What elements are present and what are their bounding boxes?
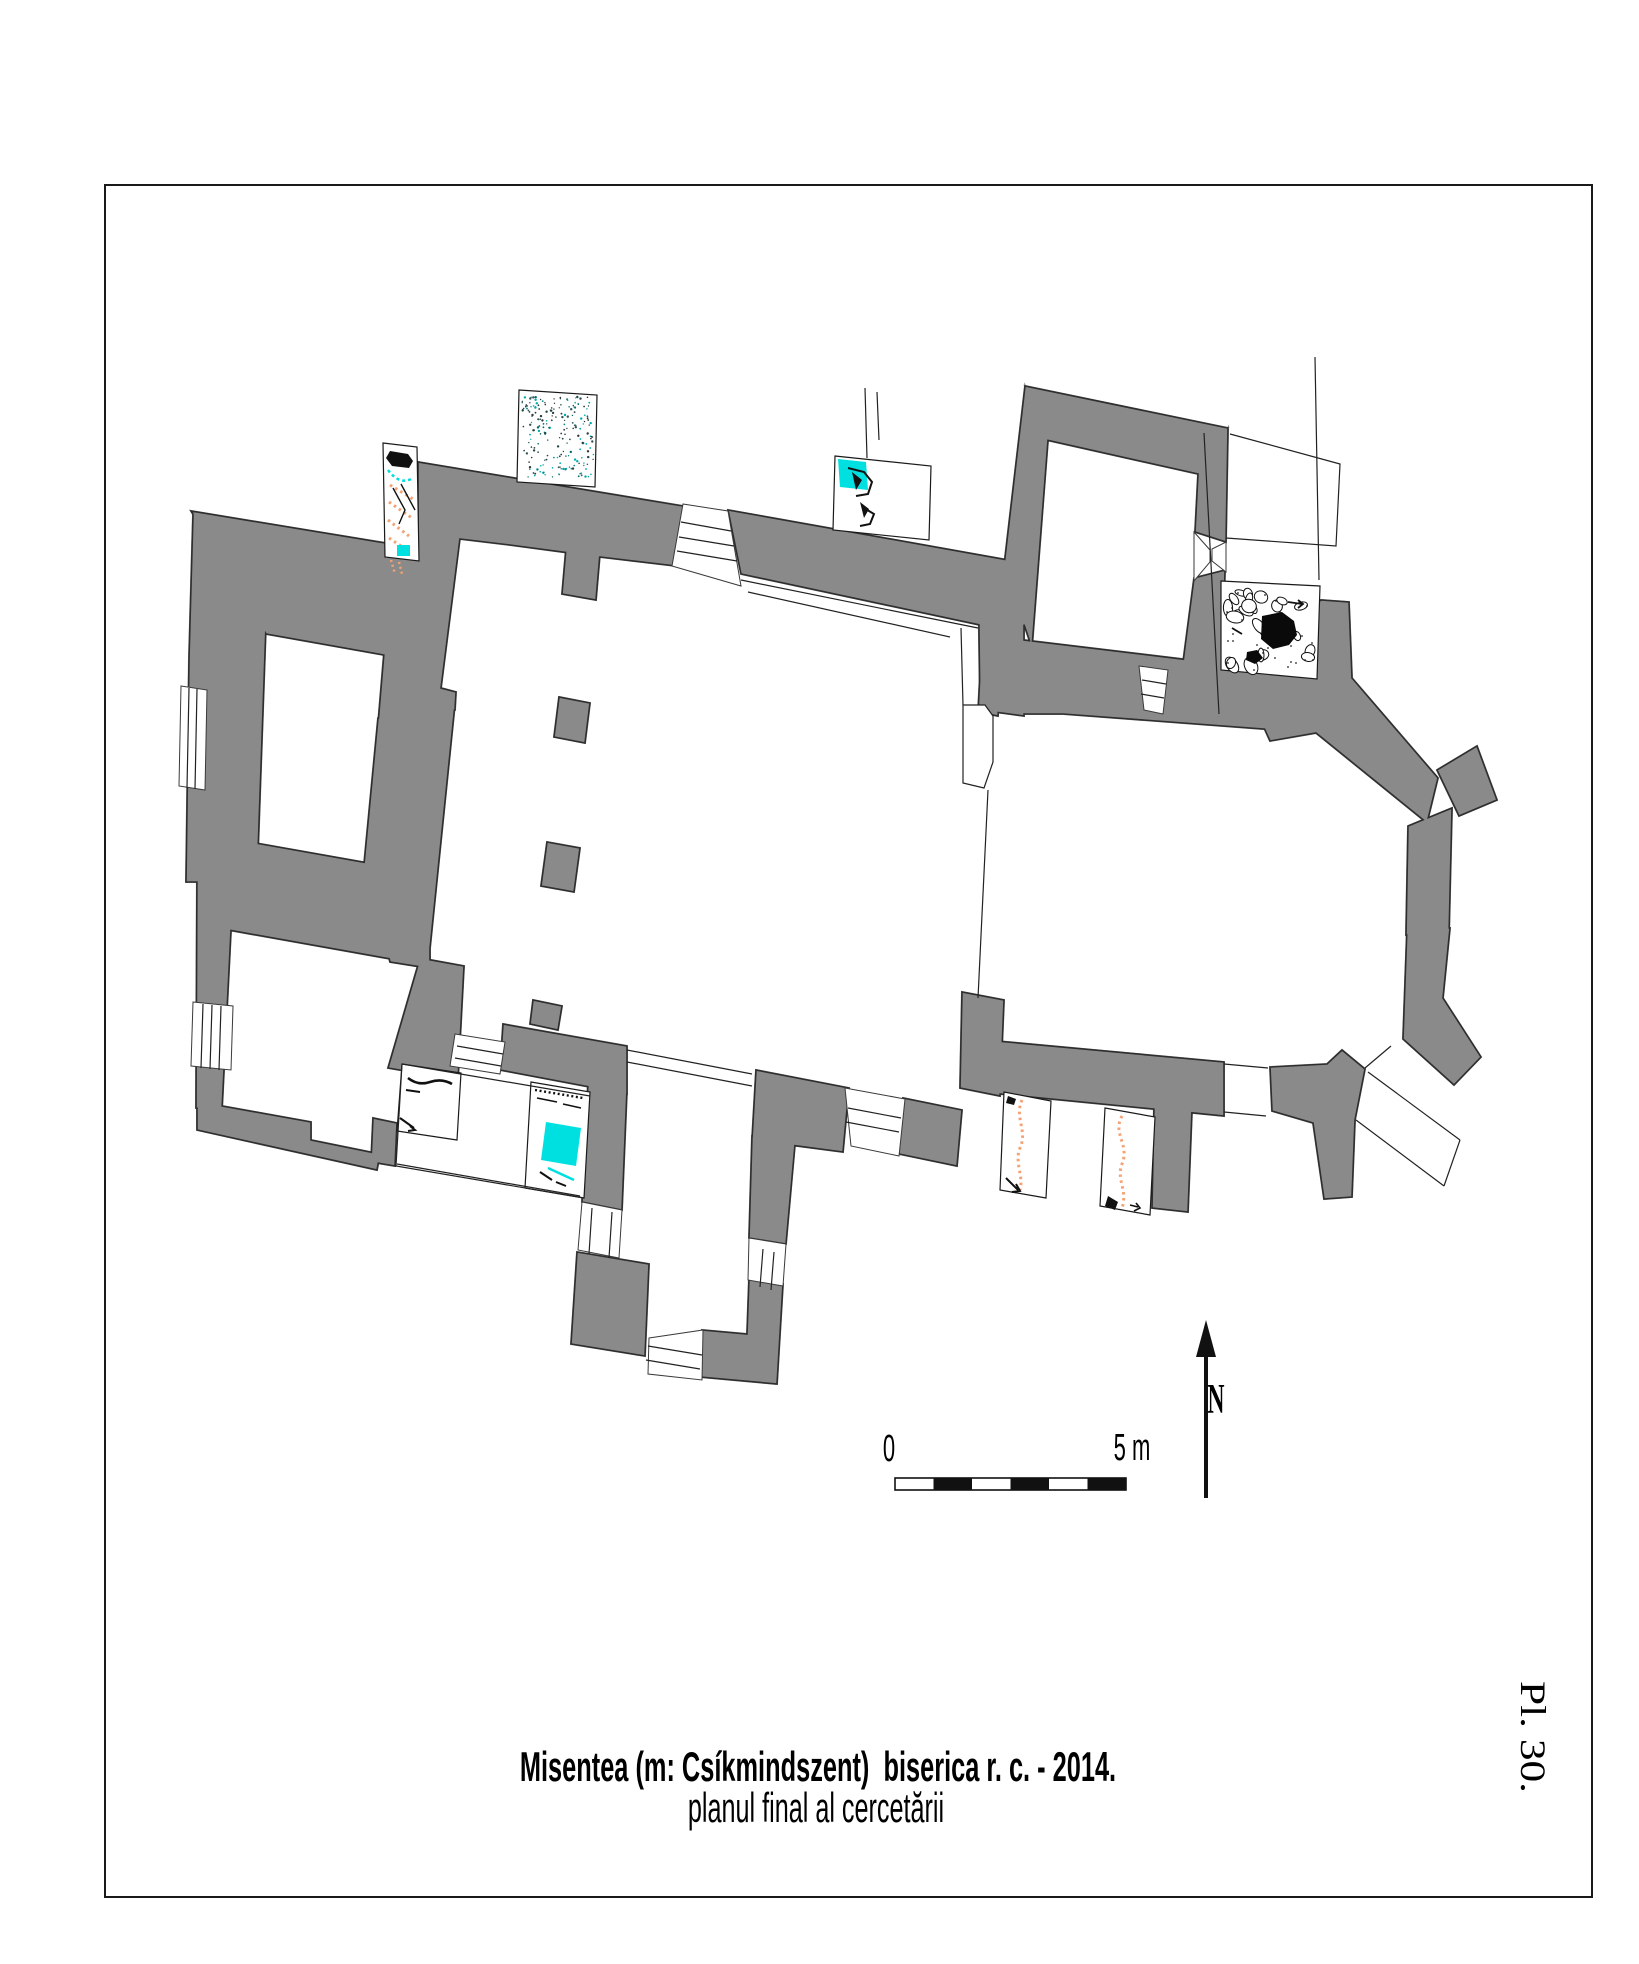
svg-text:Pl. 30.: Pl. 30.	[1513, 1681, 1553, 1793]
svg-text:planul final al cercetării: planul final al cercetării	[688, 1786, 944, 1832]
svg-text:Misentea (m: Csíkmindszent) b: Misentea (m: Csíkmindszent) biserica r. …	[520, 1745, 1116, 1791]
svg-text:5 m: 5 m	[1114, 1426, 1151, 1469]
svg-text:0: 0	[883, 1427, 895, 1470]
svg-text:N: N	[1208, 1377, 1225, 1423]
